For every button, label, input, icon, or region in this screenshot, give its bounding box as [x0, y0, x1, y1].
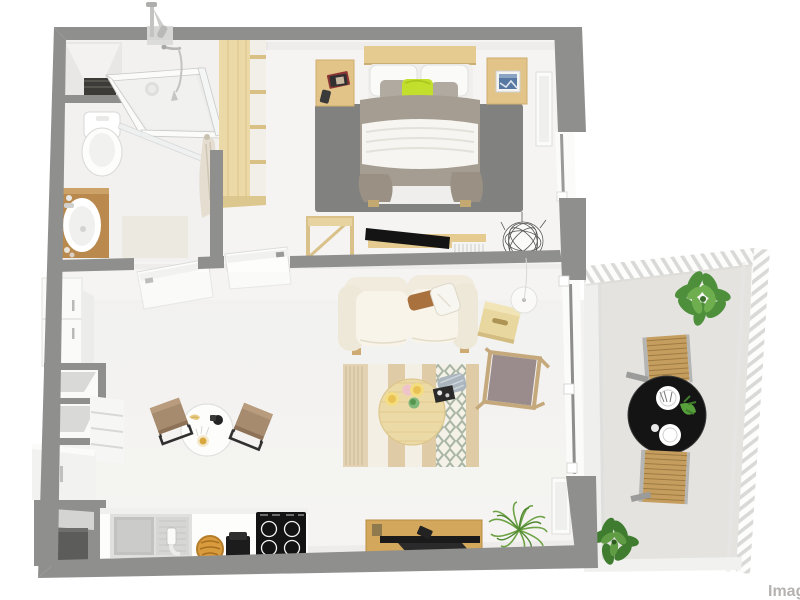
svg-text:Imag: Imag — [768, 583, 800, 600]
